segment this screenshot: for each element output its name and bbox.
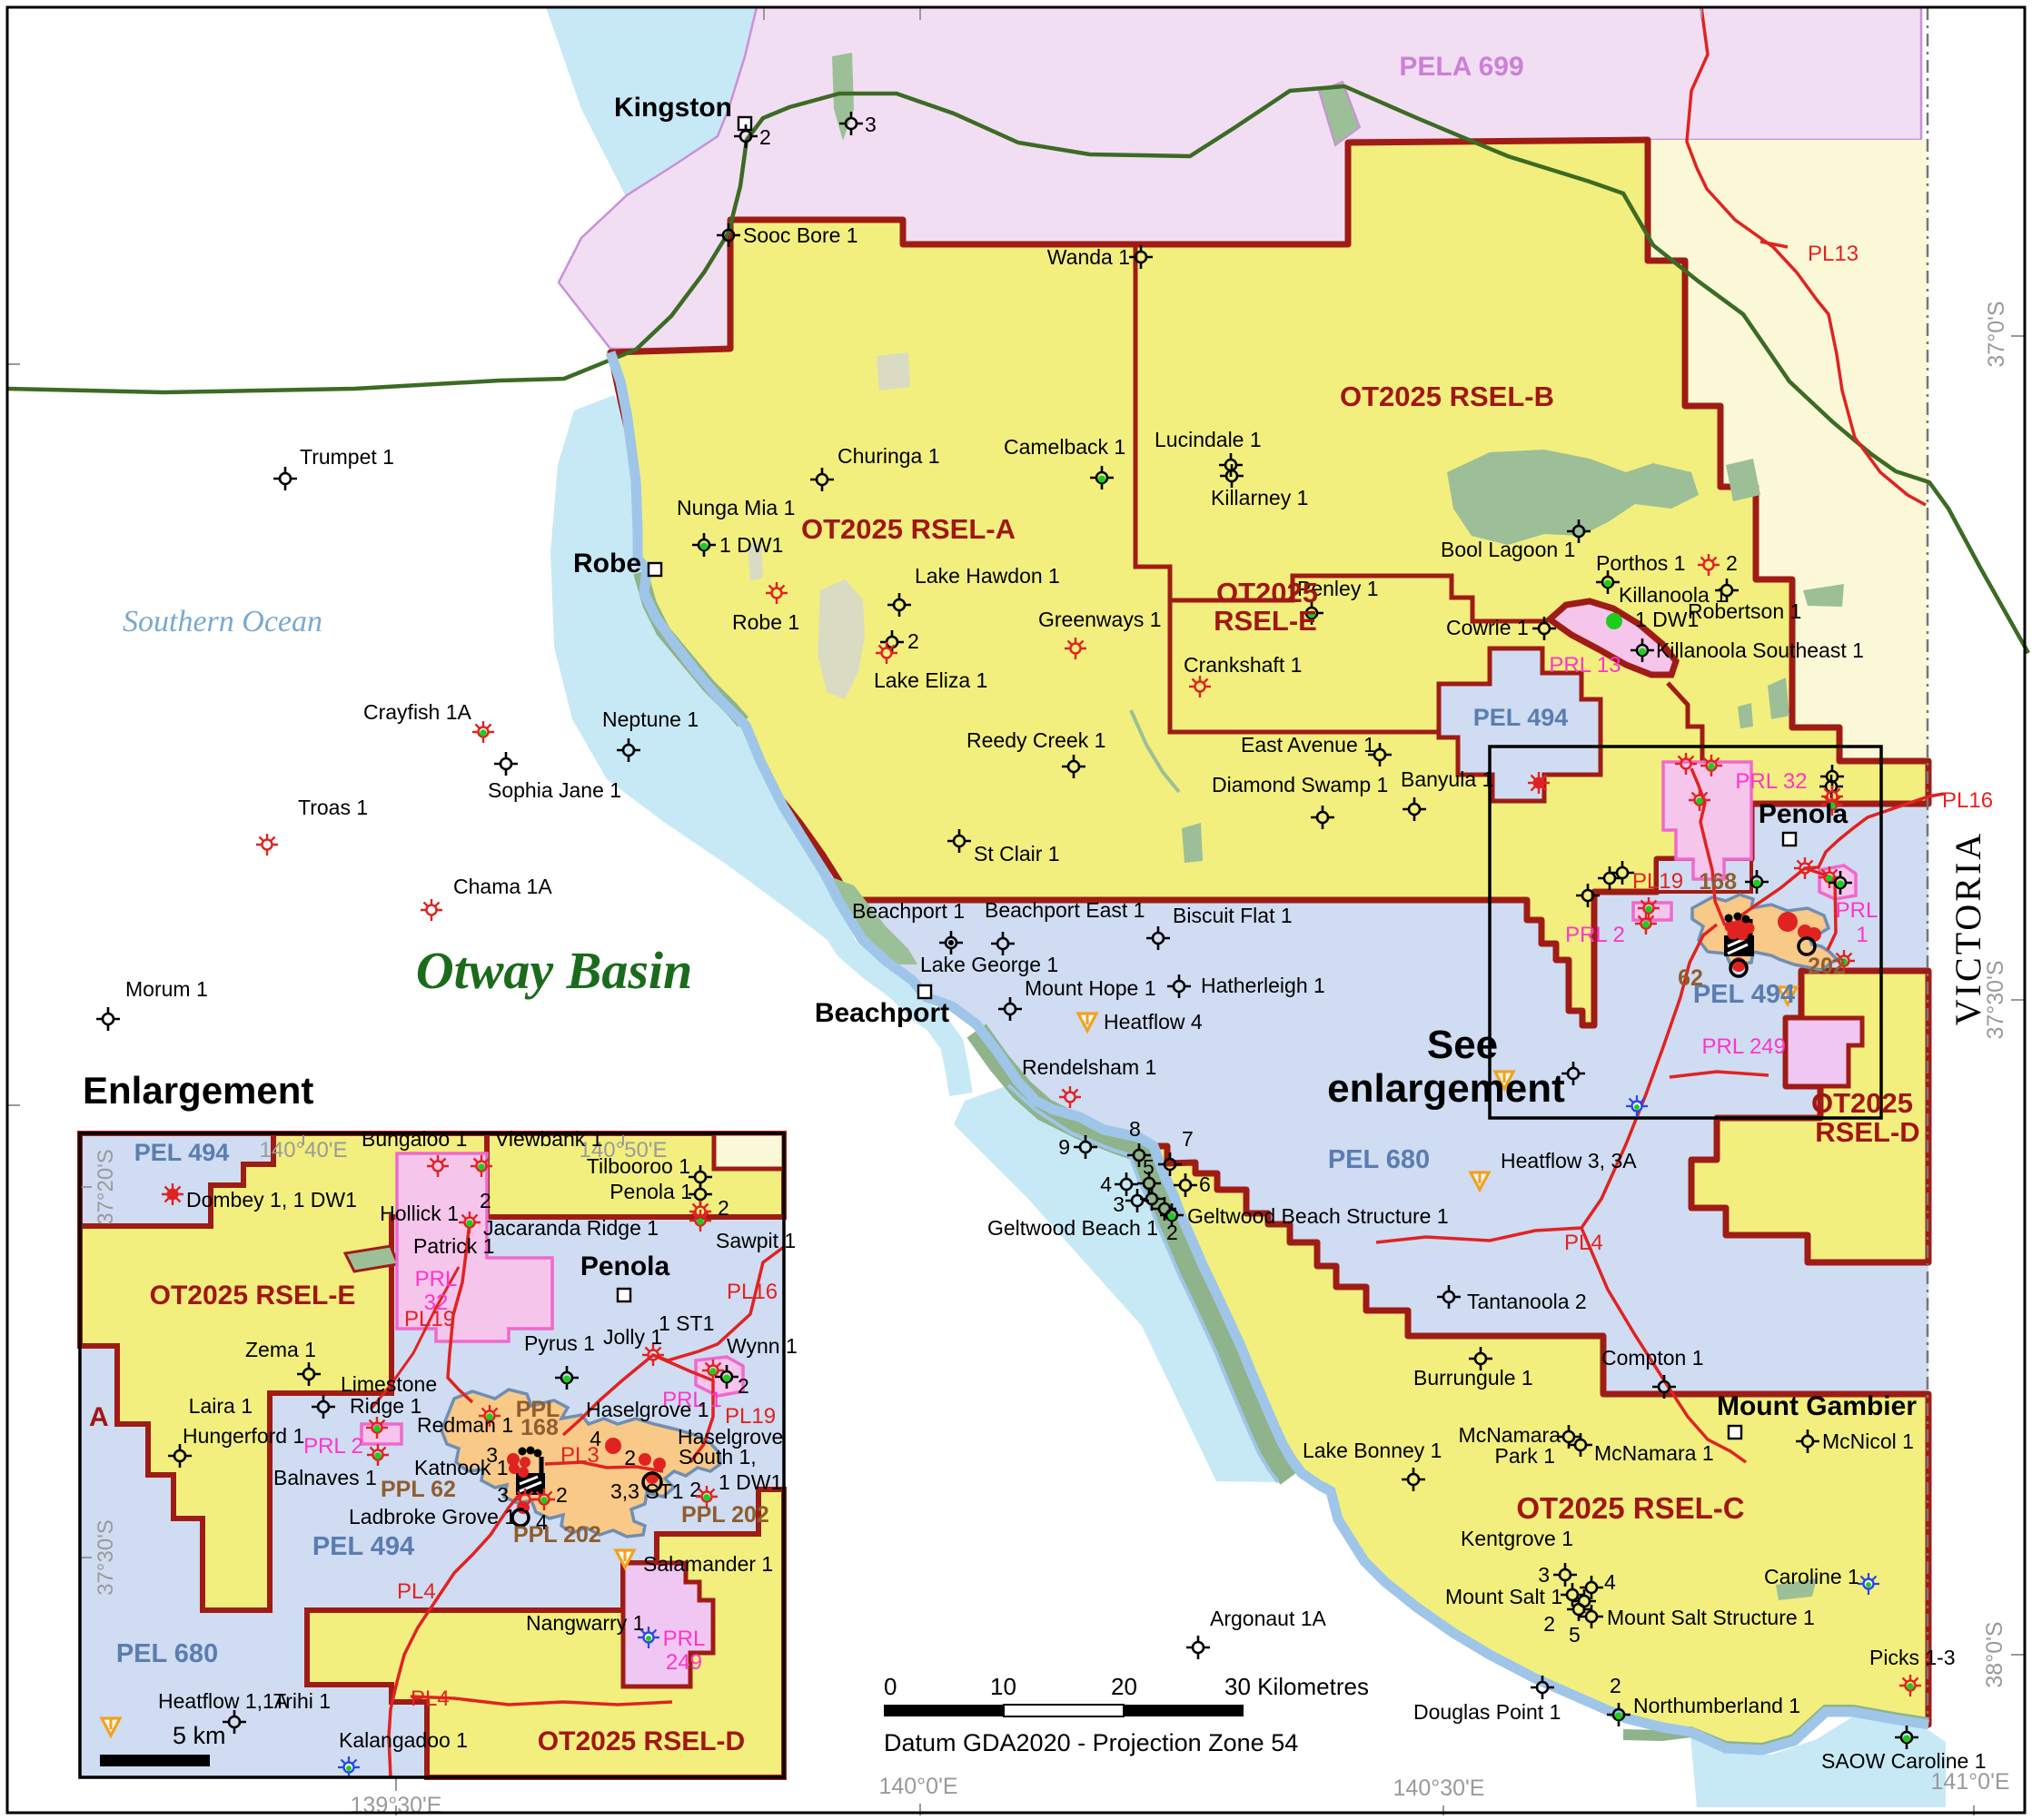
svg-text:2: 2 xyxy=(759,125,771,149)
svg-text:Park 1: Park 1 xyxy=(1495,1444,1555,1468)
svg-text:See: See xyxy=(1427,1023,1498,1067)
svg-text:RSEL-D: RSEL-D xyxy=(1815,1116,1919,1148)
svg-text:PEL 680: PEL 680 xyxy=(1328,1145,1430,1174)
svg-text:Penola 1: Penola 1 xyxy=(610,1180,692,1203)
svg-text:Robertson 1: Robertson 1 xyxy=(1688,599,1801,623)
svg-text:Viewbank 1: Viewbank 1 xyxy=(495,1127,603,1151)
svg-text:37°0'S: 37°0'S xyxy=(1984,301,2009,367)
svg-text:McNamara 1: McNamara 1 xyxy=(1594,1441,1714,1465)
svg-text:10: 10 xyxy=(990,1673,1016,1700)
svg-text:62: 62 xyxy=(1678,965,1703,991)
svg-text:Mount Salt 1: Mount Salt 1 xyxy=(1445,1585,1562,1608)
svg-text:PRL: PRL xyxy=(415,1267,458,1291)
svg-text:2: 2 xyxy=(718,1196,729,1220)
svg-text:PEL 494: PEL 494 xyxy=(312,1532,414,1561)
svg-text:Killanoola Southeast 1: Killanoola Southeast 1 xyxy=(1656,638,1864,662)
svg-text:Beachport: Beachport xyxy=(815,998,949,1028)
svg-text:4: 4 xyxy=(590,1427,601,1450)
svg-text:8: 8 xyxy=(1129,1117,1141,1141)
svg-text:Lucindale 1: Lucindale 1 xyxy=(1155,428,1262,451)
svg-text:Kingston: Kingston xyxy=(614,93,732,123)
svg-text:St Clair 1: St Clair 1 xyxy=(974,842,1060,865)
svg-text:Beachport 1: Beachport 1 xyxy=(852,899,965,923)
svg-text:0: 0 xyxy=(884,1673,897,1700)
svg-text:Biscuit Flat 1: Biscuit Flat 1 xyxy=(1173,904,1293,927)
svg-text:1 DW1: 1 DW1 xyxy=(719,533,783,557)
svg-text:Northumberland 1: Northumberland 1 xyxy=(1633,1694,1800,1717)
svg-text:PRL: PRL xyxy=(1836,898,1878,923)
svg-text:Morum 1: Morum 1 xyxy=(125,977,208,1001)
svg-text:4: 4 xyxy=(536,1510,548,1534)
svg-text:PL19: PL19 xyxy=(404,1307,455,1331)
svg-text:OT2025: OT2025 xyxy=(1811,1087,1913,1119)
svg-text:Crayfish 1A: Crayfish 1A xyxy=(363,700,472,724)
svg-text:Greenways 1: Greenways 1 xyxy=(1038,608,1162,631)
svg-text:9: 9 xyxy=(1058,1135,1070,1159)
svg-text:Tilbooroo 1: Tilbooroo 1 xyxy=(587,1154,690,1178)
svg-text:202: 202 xyxy=(1808,954,1846,979)
svg-text:A: A xyxy=(89,1402,109,1432)
svg-text:PPL 62: PPL 62 xyxy=(381,1477,456,1502)
svg-text:Compton 1: Compton 1 xyxy=(1601,1346,1704,1370)
svg-text:Heatflow 3, 3A: Heatflow 3, 3A xyxy=(1501,1149,1637,1172)
svg-text:PL4: PL4 xyxy=(397,1579,436,1604)
svg-text:2: 2 xyxy=(624,1446,636,1469)
svg-text:2: 2 xyxy=(1543,1612,1555,1636)
svg-text:Chama 1A: Chama 1A xyxy=(453,875,552,898)
svg-text:East Avenue 1: East Avenue 1 xyxy=(1241,733,1375,757)
svg-text:2: 2 xyxy=(556,1483,568,1507)
svg-text:Penola: Penola xyxy=(1759,799,1849,829)
svg-text:Troas 1: Troas 1 xyxy=(298,796,368,819)
svg-text:2: 2 xyxy=(1166,1221,1178,1244)
svg-text:Mount Hope 1: Mount Hope 1 xyxy=(1025,976,1155,1000)
svg-text:Churinga 1: Churinga 1 xyxy=(838,444,940,468)
svg-text:Dombey 1, 1 DW1: Dombey 1, 1 DW1 xyxy=(186,1188,357,1212)
svg-text:Datum GDA2020 - Projection Zon: Datum GDA2020 - Projection Zone 54 xyxy=(884,1729,1298,1756)
svg-text:PEL 680: PEL 680 xyxy=(116,1639,218,1668)
svg-text:Tantanoola 2: Tantanoola 2 xyxy=(1467,1290,1587,1313)
svg-text:2: 2 xyxy=(738,1374,749,1398)
svg-text:Bungaloo 1: Bungaloo 1 xyxy=(362,1127,467,1151)
svg-text:Camelback 1: Camelback 1 xyxy=(1004,435,1125,459)
svg-text:5: 5 xyxy=(1143,1155,1155,1179)
svg-text:Balnaves 1: Balnaves 1 xyxy=(273,1466,377,1489)
svg-text:140°0'E: 140°0'E xyxy=(878,1774,957,1799)
svg-text:PEL 494: PEL 494 xyxy=(1693,980,1795,1009)
svg-text:OT2025 RSEL-B: OT2025 RSEL-B xyxy=(1340,381,1554,412)
svg-text:PL4: PL4 xyxy=(411,1686,450,1711)
svg-text:Lake Bonney 1: Lake Bonney 1 xyxy=(1303,1439,1442,1462)
svg-text:OT2025 RSEL-E: OT2025 RSEL-E xyxy=(150,1281,356,1311)
svg-text:Jacaranda Ridge 1: Jacaranda Ridge 1 xyxy=(483,1216,659,1240)
svg-text:Douglas Point 1: Douglas Point 1 xyxy=(1413,1700,1561,1724)
svg-text:Porthos 1: Porthos 1 xyxy=(1596,551,1685,575)
svg-text:1: 1 xyxy=(1856,923,1868,947)
svg-text:PRL 13: PRL 13 xyxy=(1549,653,1621,678)
svg-text:PPL 202: PPL 202 xyxy=(681,1502,769,1528)
svg-text:OT2025 RSEL-C: OT2025 RSEL-C xyxy=(1516,1491,1744,1525)
svg-text:Ladbroke Grove 1: Ladbroke Grove 1 xyxy=(349,1505,516,1528)
svg-text:PELA 699: PELA 699 xyxy=(1399,52,1523,82)
svg-text:3: 3 xyxy=(1538,1563,1550,1587)
svg-text:PRL 2: PRL 2 xyxy=(1565,923,1625,947)
svg-text:20: 20 xyxy=(1111,1673,1137,1700)
svg-text:PL19: PL19 xyxy=(1632,869,1683,894)
svg-text:Hungerford 1: Hungerford 1 xyxy=(183,1424,304,1448)
svg-text:Mount Gambier: Mount Gambier xyxy=(1717,1391,1917,1421)
svg-text:4: 4 xyxy=(1604,1570,1616,1594)
svg-text:249: 249 xyxy=(666,1650,702,1675)
svg-text:3: 3 xyxy=(1113,1192,1125,1216)
svg-text:168: 168 xyxy=(520,1415,559,1440)
svg-text:Killarney 1: Killarney 1 xyxy=(1211,486,1308,509)
svg-text:Zema 1: Zema 1 xyxy=(245,1338,316,1361)
svg-text:PEL 494: PEL 494 xyxy=(134,1139,230,1166)
svg-text:3: 3 xyxy=(865,113,877,136)
svg-text:7: 7 xyxy=(1182,1127,1194,1151)
svg-text:Hollick 1: Hollick 1 xyxy=(380,1202,459,1225)
svg-text:Otway Basin: Otway Basin xyxy=(416,941,693,1000)
svg-text:PRL: PRL xyxy=(663,1627,706,1651)
svg-text:Bool Lagoon 1: Bool Lagoon 1 xyxy=(1441,538,1575,561)
svg-text:OT2025 RSEL-A: OT2025 RSEL-A xyxy=(801,513,1016,545)
svg-text:3: 3 xyxy=(486,1443,498,1467)
svg-text:Heatflow 4: Heatflow 4 xyxy=(1104,1010,1203,1034)
svg-text:Wanda 1: Wanda 1 xyxy=(1047,245,1130,269)
svg-text:Sooc Bore 1: Sooc Bore 1 xyxy=(743,223,858,247)
svg-text:Diamond Swamp 1: Diamond Swamp 1 xyxy=(1212,773,1388,796)
svg-text:30 Kilometres: 30 Kilometres xyxy=(1224,1673,1369,1700)
svg-text:37°20'S: 37°20'S xyxy=(94,1149,118,1225)
svg-text:Hatherleigh 1: Hatherleigh 1 xyxy=(1201,974,1325,997)
svg-text:Wynn 1: Wynn 1 xyxy=(727,1334,798,1358)
svg-text:Kentgrove 1: Kentgrove 1 xyxy=(1461,1527,1573,1550)
svg-text:Jolly 1: Jolly 1 xyxy=(603,1325,662,1349)
svg-text:3: 3 xyxy=(497,1483,509,1507)
svg-text:PRL 249: PRL 249 xyxy=(1701,1034,1786,1059)
svg-text:Pyrus 1: Pyrus 1 xyxy=(524,1331,595,1355)
svg-text:Trumpet 1: Trumpet 1 xyxy=(300,445,394,469)
svg-text:Picks 1-3: Picks 1-3 xyxy=(1869,1646,1956,1669)
svg-text:Redman 1: Redman 1 xyxy=(417,1413,513,1437)
svg-text:Burrungule 1: Burrungule 1 xyxy=(1413,1366,1533,1390)
svg-text:PL16: PL16 xyxy=(1942,788,1993,813)
svg-text:Nangwarry 1: Nangwarry 1 xyxy=(526,1611,644,1635)
svg-text:Heatflow 1,1A: Heatflow 1,1A xyxy=(158,1689,289,1713)
svg-text:2: 2 xyxy=(1610,1674,1621,1697)
svg-text:Geltwood Beach Structure 1: Geltwood Beach Structure 1 xyxy=(1187,1204,1449,1228)
svg-text:Rendelsham 1: Rendelsham 1 xyxy=(1022,1055,1156,1079)
svg-text:Cowrie 1: Cowrie 1 xyxy=(1446,616,1529,639)
svg-text:PRL 32: PRL 32 xyxy=(1735,769,1807,794)
svg-text:3,3 ST1: 3,3 ST1 xyxy=(610,1479,684,1503)
svg-text:Limestone: Limestone xyxy=(341,1372,437,1396)
svg-text:2: 2 xyxy=(907,629,919,653)
svg-text:enlargement: enlargement xyxy=(1327,1066,1565,1111)
svg-text:Argonaut 1A: Argonaut 1A xyxy=(1210,1607,1327,1630)
svg-text:140°30'E: 140°30'E xyxy=(1393,1775,1485,1801)
svg-text:PL16: PL16 xyxy=(727,1280,778,1304)
svg-text:2: 2 xyxy=(480,1189,491,1212)
svg-text:OT2025 RSEL-D: OT2025 RSEL-D xyxy=(538,1726,745,1756)
svg-text:McNicol 1: McNicol 1 xyxy=(1822,1429,1914,1453)
svg-text:Ridge 1: Ridge 1 xyxy=(350,1394,421,1418)
svg-text:Salamander 1: Salamander 1 xyxy=(643,1552,773,1576)
svg-text:Lake George 1: Lake George 1 xyxy=(920,953,1058,976)
svg-text:PL13: PL13 xyxy=(1808,242,1859,266)
svg-text:PRL 2: PRL 2 xyxy=(303,1434,363,1459)
svg-text:Lake Hawdon 1: Lake Hawdon 1 xyxy=(915,564,1060,588)
svg-text:Laira 1: Laira 1 xyxy=(189,1394,253,1418)
svg-text:37°30'S: 37°30'S xyxy=(94,1519,118,1596)
svg-text:Mount Salt Structure 1: Mount Salt Structure 1 xyxy=(1607,1606,1815,1629)
svg-text:PEL 494: PEL 494 xyxy=(1473,704,1569,731)
svg-text:5 km: 5 km xyxy=(173,1722,226,1749)
svg-text:Patrick 1: Patrick 1 xyxy=(413,1234,494,1258)
svg-text:Neptune 1: Neptune 1 xyxy=(602,707,699,731)
svg-text:PPL 202: PPL 202 xyxy=(513,1522,601,1548)
svg-text:OT2025: OT2025 xyxy=(1216,577,1318,608)
svg-text:Southern Ocean: Southern Ocean xyxy=(123,605,322,638)
svg-text:PL4: PL4 xyxy=(1564,1231,1603,1255)
svg-text:Banyula 1: Banyula 1 xyxy=(1401,767,1493,791)
svg-text:38°0'S: 38°0'S xyxy=(1982,1621,2007,1687)
svg-text:Geltwood Beach 1: Geltwood Beach 1 xyxy=(987,1216,1158,1240)
svg-text:6: 6 xyxy=(1199,1172,1211,1196)
svg-text:Robe: Robe xyxy=(573,549,641,579)
svg-text:141°0'E: 141°0'E xyxy=(1930,1769,2009,1795)
svg-text:Lake Eliza 1: Lake Eliza 1 xyxy=(874,668,987,692)
svg-text:Crankshaft 1: Crankshaft 1 xyxy=(1184,653,1302,677)
svg-text:Beachport East 1: Beachport East 1 xyxy=(985,898,1145,922)
svg-text:Sophia Jane 1: Sophia Jane 1 xyxy=(488,778,621,802)
svg-text:1 DW1: 1 DW1 xyxy=(719,1470,782,1494)
svg-text:Robe 1: Robe 1 xyxy=(732,610,799,634)
svg-text:2: 2 xyxy=(1726,551,1738,575)
svg-text:Reedy Creek 1: Reedy Creek 1 xyxy=(966,728,1105,752)
svg-text:Haselgrove 1: Haselgrove 1 xyxy=(586,1398,709,1421)
svg-text:Penola: Penola xyxy=(580,1251,670,1281)
svg-text:37°30'S: 37°30'S xyxy=(1983,960,2008,1039)
svg-text:South 1,: South 1, xyxy=(679,1445,757,1469)
svg-text:4: 4 xyxy=(1100,1172,1112,1196)
svg-text:Caroline 1: Caroline 1 xyxy=(1764,1565,1859,1588)
svg-text:1 ST1: 1 ST1 xyxy=(659,1311,714,1335)
svg-text:5: 5 xyxy=(1569,1623,1581,1647)
svg-text:Kalangadoo 1: Kalangadoo 1 xyxy=(339,1728,468,1752)
svg-text:Enlargement: Enlargement xyxy=(83,1069,313,1112)
svg-text:168: 168 xyxy=(1699,869,1737,895)
svg-text:Nunga Mia 1: Nunga Mia 1 xyxy=(677,496,795,519)
svg-text:RSEL-E: RSEL-E xyxy=(1214,605,1317,637)
svg-text:Trihi 1: Trihi 1 xyxy=(273,1689,331,1713)
